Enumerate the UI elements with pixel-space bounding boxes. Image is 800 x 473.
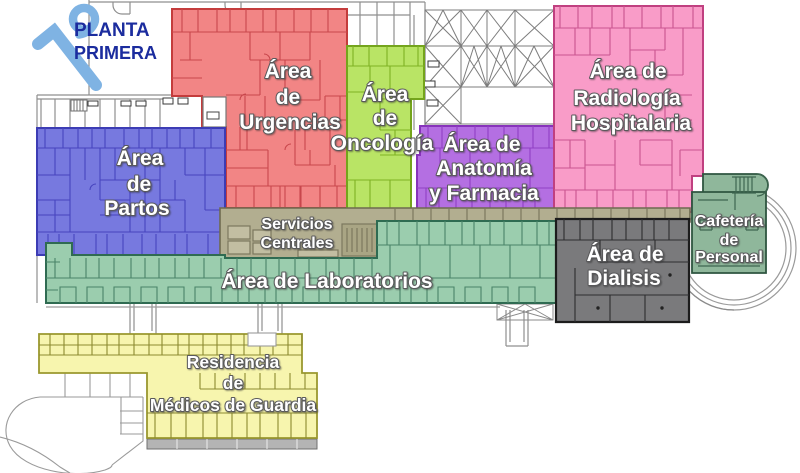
svg-text:Anatomía: Anatomía: [436, 157, 532, 180]
svg-text:Oncología: Oncología: [331, 132, 434, 155]
svg-text:de: de: [720, 232, 739, 249]
svg-text:Hospitalaria: Hospitalaria: [571, 112, 692, 135]
svg-text:de: de: [373, 107, 398, 130]
svg-text:Radiología: Radiología: [573, 87, 681, 110]
svg-text:Cafetería: Cafetería: [695, 213, 764, 230]
svg-text:Urgencias: Urgencias: [239, 111, 341, 134]
svg-text:Servicios: Servicios: [261, 216, 332, 233]
svg-text:y Farmacia: y Farmacia: [429, 182, 539, 205]
svg-text:de: de: [276, 86, 301, 109]
svg-text:Área de: Área de: [586, 243, 663, 266]
svg-text:Personal: Personal: [695, 249, 763, 266]
svg-text:Área de Laboratorios: Área de Laboratorios: [221, 270, 432, 293]
svg-text:Centrales: Centrales: [261, 235, 334, 252]
svg-text:Partos: Partos: [104, 197, 169, 220]
svg-text:de: de: [127, 173, 152, 196]
svg-text:PRIMERA: PRIMERA: [74, 43, 157, 63]
svg-text:Área: Área: [265, 60, 312, 83]
svg-text:Área: Área: [117, 147, 164, 170]
svg-text:de: de: [223, 373, 244, 393]
svg-text:PLANTA: PLANTA: [74, 20, 150, 41]
svg-text:Dialisis: Dialisis: [587, 267, 661, 290]
svg-text:Médicos de Guardia: Médicos de Guardia: [150, 395, 317, 415]
svg-text:Residencia: Residencia: [187, 352, 280, 372]
svg-text:Área: Área: [362, 83, 409, 106]
svg-text:Área de: Área de: [443, 133, 520, 156]
svg-text:Área de: Área de: [589, 60, 666, 83]
